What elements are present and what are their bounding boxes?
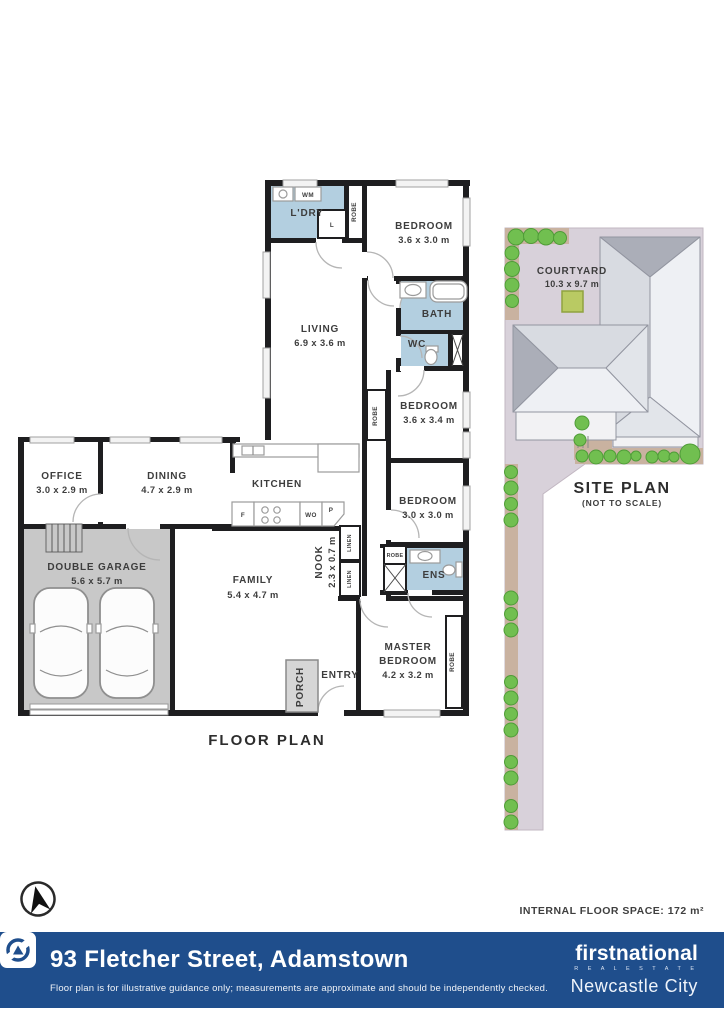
label-entry: ENTRY xyxy=(321,670,359,681)
label-courtyard: COURTYARD xyxy=(537,266,607,277)
label-family: FAMILY xyxy=(233,575,274,586)
label-courtyard-dims: 10.3 x 9.7 m xyxy=(545,279,599,289)
north-arrow-icon xyxy=(18,879,57,918)
floor-plan-title: FLOOR PLAN xyxy=(208,732,326,749)
brand-name: firstnational xyxy=(575,943,698,964)
first-national-icon xyxy=(0,932,36,968)
label-bed2: BEDROOM xyxy=(400,401,458,412)
label-master-dims: 4.2 x 3.2 m xyxy=(382,670,433,680)
plan-canvas: L'DRY WM L ROBE BEDROOM 3.6 x 3.0 m LIVI… xyxy=(0,0,724,932)
label-bed2-dims: 3.6 x 3.4 m xyxy=(403,415,454,425)
car-icon xyxy=(96,588,158,698)
label-bed1: BEDROOM xyxy=(395,221,453,232)
label-living-dims: 6.9 x 3.6 m xyxy=(294,338,345,348)
label-office-dims: 3.0 x 2.9 m xyxy=(36,485,87,495)
brand-tagline: R E A L E S T A T E xyxy=(574,966,698,972)
label-laundry: L'DRY xyxy=(290,208,323,219)
label-linen: LINEN xyxy=(347,570,353,588)
label-master-1: MASTER xyxy=(384,642,431,653)
label-robe: ROBE xyxy=(351,202,358,222)
label-dining: DINING xyxy=(147,471,187,482)
garage-door xyxy=(30,704,168,715)
address-block: 93 Fletcher Street, Adamstown Floor plan… xyxy=(50,946,548,994)
label-nook: NOOK xyxy=(314,545,325,578)
label-wall-oven: WO xyxy=(305,512,317,519)
label-fridge: F xyxy=(241,512,245,519)
page: L'DRY WM L ROBE BEDROOM 3.6 x 3.0 m LIVI… xyxy=(0,0,724,1024)
label-bed3: BEDROOM xyxy=(399,496,457,507)
label-bed1-dims: 3.6 x 3.0 m xyxy=(398,235,449,245)
agency-logo: firstnational R E A L E S T A T E Newcas… xyxy=(571,943,698,997)
office-name: Newcastle City xyxy=(571,976,698,997)
footer-bar: 93 Fletcher Street, Adamstown Floor plan… xyxy=(0,932,724,1008)
label-wm: WM xyxy=(302,192,314,199)
internal-floor-space: INTERNAL FLOOR SPACE: 172 m² xyxy=(519,905,704,917)
site-plan-title: SITE PLAN xyxy=(573,480,670,497)
courtyard-marker xyxy=(562,291,583,312)
label-linen-l: L xyxy=(330,222,334,229)
label-robe: ROBE xyxy=(372,406,379,426)
label-dining-dims: 4.7 x 2.9 m xyxy=(141,485,192,495)
floor-plan: L'DRY WM L ROBE BEDROOM 3.6 x 3.0 m LIVI… xyxy=(18,180,470,749)
label-garage: DOUBLE GARAGE xyxy=(47,562,146,573)
label-robe: ROBE xyxy=(387,553,404,559)
stairs xyxy=(46,524,82,552)
label-wc: WC xyxy=(408,339,426,350)
disclaimer-text: Floor plan is for illustrative guidance … xyxy=(50,983,548,994)
label-pantry: P xyxy=(329,507,334,514)
label-porch: PORCH xyxy=(295,667,306,707)
label-ensuite: ENS xyxy=(423,570,446,581)
label-office: OFFICE xyxy=(41,471,82,482)
label-living: LIVING xyxy=(301,324,339,335)
label-nook-dims: 2.3 x 0.7 m xyxy=(327,536,337,587)
label-bath: BATH xyxy=(422,309,452,320)
label-master-2: BEDROOM xyxy=(379,656,437,667)
label-robe: ROBE xyxy=(449,652,456,672)
label-bed3-dims: 3.0 x 3.0 m xyxy=(402,510,453,520)
label-kitchen: KITCHEN xyxy=(252,479,302,490)
car-icon xyxy=(30,588,92,698)
label-linen: LINEN xyxy=(347,534,353,552)
site-plan-subtitle: (NOT TO SCALE) xyxy=(582,498,662,508)
label-family-dims: 5.4 x 4.7 m xyxy=(227,590,278,600)
property-address: 93 Fletcher Street, Adamstown xyxy=(50,946,548,974)
site-plan: COURTYARD 10.3 x 9.7 m SITE PLAN (NOT TO… xyxy=(504,228,703,830)
label-garage-dims: 5.6 x 5.7 m xyxy=(71,576,122,586)
